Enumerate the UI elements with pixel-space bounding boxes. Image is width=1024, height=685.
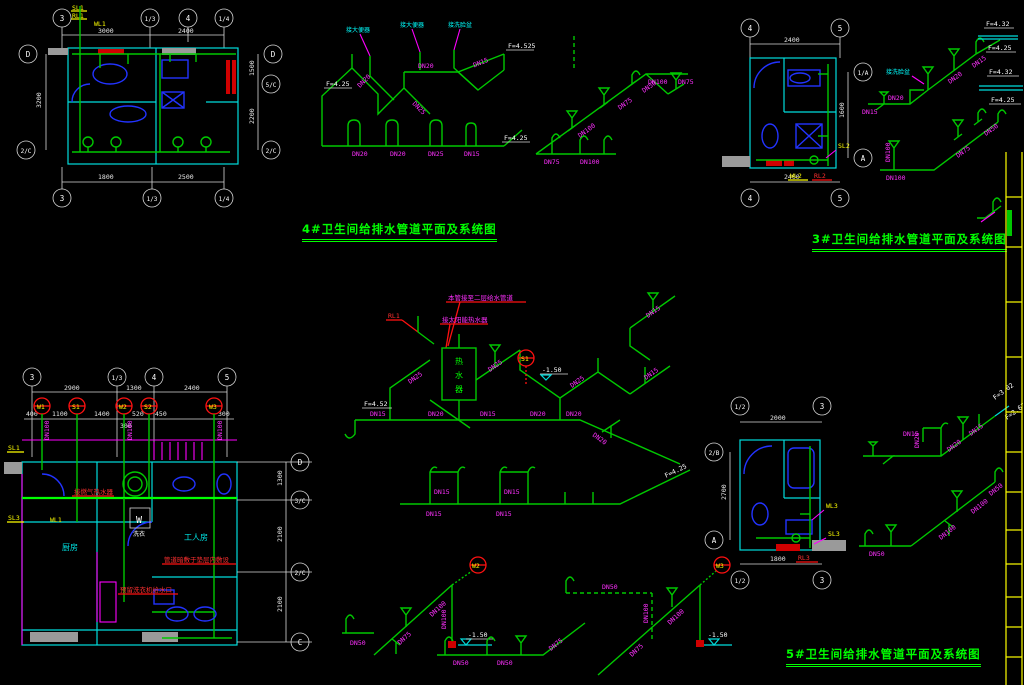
dn-label: DN100 xyxy=(580,158,600,166)
hot-water-annotations: RL1 本管接至二层给水管道 接太阳能热水器 xyxy=(386,293,526,348)
riser-label: SL3 xyxy=(8,514,20,522)
grid-bubble: D xyxy=(298,458,303,467)
dn-label: DN25 xyxy=(407,370,424,386)
fixture-callouts: 接大便器 接大便器 接洗脸盆 xyxy=(346,21,472,56)
plan-5-floor-plan: 1/2 3 1/2 3 2/B A 2000 1800 2700 xyxy=(700,388,856,590)
dn-label: DN50 xyxy=(497,659,513,667)
drawing-title-4: 4#卫生间给排水管道平面及系统图 xyxy=(302,221,497,242)
heater-box: 热 水 器 xyxy=(442,348,476,400)
grid-bubble: 4 xyxy=(748,194,753,203)
washing-machine-w: W xyxy=(136,515,143,526)
room-label-worker: 工人房 xyxy=(184,532,208,542)
dn-label: DN15 xyxy=(496,510,512,518)
riser-mark-text: S1 xyxy=(521,355,529,363)
dn-label: DN15 xyxy=(426,510,442,518)
grid-bubble: 2/B xyxy=(709,450,720,457)
riser-label: RL1 xyxy=(388,312,400,320)
annotation: 接燃气热水器 xyxy=(74,487,114,496)
riser-label: SL1 xyxy=(8,444,20,452)
iso-5-supply-diagram: RL1 本管接至二层给水管道 接太阳能热水器 热 水 器 S1 xyxy=(330,288,710,468)
callout-text: 接洗脸盆 xyxy=(448,21,472,29)
riser-mark-text: S2 xyxy=(144,403,152,411)
dim-text: 520 xyxy=(132,410,144,418)
elev-label: F=4.25 xyxy=(991,96,1015,104)
dim-text: 2400 xyxy=(178,27,194,35)
grid-bubble: 5 xyxy=(225,373,230,382)
dn-label: DN20 xyxy=(428,410,444,418)
heater-text: 热 xyxy=(455,356,463,366)
dim-text: 2200 xyxy=(248,108,256,124)
wall-red xyxy=(226,60,230,94)
grid-bubble: 1/3 xyxy=(112,375,123,382)
pipe-base xyxy=(696,640,704,647)
dn-label: DN100 xyxy=(884,142,892,162)
iso-supply-row-diagram: DN15 DN15 DN15 DN15 F=4.25 xyxy=(390,452,720,524)
dn-label: DN100 xyxy=(126,420,134,440)
grid-bubble: 1/4 xyxy=(219,16,230,23)
annotation: 预留洗衣机给水口 xyxy=(120,585,172,594)
dn-label: DN75 xyxy=(954,144,971,160)
dn-label: DN100 xyxy=(886,174,906,182)
plan5L-grid-right: D 3/C 2/C C 1300 2100 2100 xyxy=(237,453,312,651)
dim-text: 2700 xyxy=(720,484,728,500)
grid-bubble: 4 xyxy=(186,14,191,23)
w3-labels: DN50 DN100 DN75 DN100 xyxy=(602,583,686,658)
dn-label: DN50 xyxy=(350,639,366,647)
riser-mark-s1: S1 xyxy=(69,398,85,414)
plan4-fixtures xyxy=(72,60,188,122)
plan-5-large-floor-plan: 3 1/3 4 5 2900 1300 2400 400 1100 1400 5… xyxy=(2,362,324,684)
cell-mark xyxy=(1007,210,1012,236)
wall-hatch xyxy=(142,632,178,642)
dn-label: DN20 xyxy=(390,150,406,158)
dim-text: 1300 xyxy=(126,384,142,392)
dn-label: DN50 xyxy=(869,550,885,558)
wall-hatch xyxy=(4,462,22,474)
grid-bubble: 3 xyxy=(820,576,825,585)
plan3-pipes xyxy=(756,64,828,166)
wall-red xyxy=(766,160,782,166)
riser-mark-text: W1 xyxy=(37,403,45,411)
plan4-grid-bubbles: 3 1/3 4 1/4 3 1/3 1/4 D 2/C D 5/C 2/C xyxy=(17,9,282,207)
dim-text: 2100 xyxy=(276,526,284,542)
grid-bubble: 5 xyxy=(838,24,843,33)
grid-bubble: 3/C xyxy=(295,498,306,505)
plan4-walls xyxy=(48,48,238,164)
supply-dn-labels: DN15 DN25 DN25 DN20 DN15 DN20 DN20 DN20 … xyxy=(370,304,662,447)
dn-label: DN20 xyxy=(530,410,546,418)
annotation: 接太阳能热水器 xyxy=(442,315,488,324)
dn-label: DN75 xyxy=(678,78,694,86)
dn-label: DN100 xyxy=(937,523,957,541)
dn-label: DN15 xyxy=(472,56,490,69)
grid-bubble: D xyxy=(26,50,31,59)
riser-mark-w2: W2 xyxy=(116,398,132,414)
wall-hatch xyxy=(48,48,68,55)
elev-label: -1.50 xyxy=(542,366,562,374)
grid-bubble: 3 xyxy=(60,194,65,203)
riser-mark-w3: W3 xyxy=(206,398,222,414)
grid-bubble: 5 xyxy=(838,194,843,203)
dim-text: 1800 xyxy=(98,173,114,181)
dn-label: DN20 xyxy=(913,432,921,448)
elev-label: F=4.52 xyxy=(364,400,388,408)
dn-label: DN75 xyxy=(616,96,633,112)
grid-bubble: 5/C xyxy=(266,82,277,89)
dn-label: DN20 xyxy=(352,150,368,158)
dn-label: DN75 xyxy=(628,642,645,658)
riser-label: SL2 xyxy=(838,142,850,150)
heater-text: 器 xyxy=(455,385,463,394)
dn-label: DN25 xyxy=(428,150,444,158)
wall-red xyxy=(784,160,794,166)
w3-pipes xyxy=(566,571,716,675)
row-pipes xyxy=(400,467,690,504)
dn-label: DN15 xyxy=(967,422,984,438)
plan3-grid-bubbles: 4 5 4 5 1/A A xyxy=(741,19,872,207)
riser-label: RL3 xyxy=(798,554,810,562)
dim-text: 2900 xyxy=(64,384,80,392)
dn-label: DN100 xyxy=(648,78,668,86)
iso-4-supply-diagram: 接大便器 接大便器 接洗脸盆 DN20 DN25 DN20 DN15 DN20 … xyxy=(308,18,536,166)
dim-text: 1300 xyxy=(276,470,284,486)
drawing-title-5: 5#卫生间给排水管道平面及系统图 xyxy=(786,646,981,667)
dn-label: DN20 xyxy=(418,62,434,70)
elev-label: F=4.32 xyxy=(989,68,1013,76)
annotation: 本管接至二层给水管道 xyxy=(448,293,514,302)
grid-bubble: 3 xyxy=(30,373,35,382)
dn-label: DN15 xyxy=(464,150,480,158)
dim-text: 450 xyxy=(155,410,167,418)
dim-text: 1800 xyxy=(770,555,786,563)
wall-hatch xyxy=(812,540,846,551)
grid-bubble: 3 xyxy=(60,14,65,23)
plan-3-floor-plan: 4 5 4 5 1/A A 2400 2400 1600 xyxy=(722,8,878,210)
dim-text: 2400 xyxy=(784,36,800,44)
grid-bubble: 3 xyxy=(820,402,825,411)
dim-text: 3200 xyxy=(35,92,43,108)
dn-label: DN15 xyxy=(862,108,878,116)
dn-label: DN20 xyxy=(591,431,608,447)
elev-label: F=4.25 xyxy=(504,134,528,142)
grid-bubble: 1/2 xyxy=(735,404,746,411)
dim-text: 2000 xyxy=(770,414,786,422)
riser-label: WL1 xyxy=(50,516,62,524)
iso-4-drain-diagram: DN100 DN75 DN50 DN100 DN75 DN100 DN75 xyxy=(528,36,728,174)
riser-label: SL3 xyxy=(828,530,840,538)
plan5-dimensions: 2000 1800 2700 xyxy=(720,414,822,564)
riser-label: WL2 xyxy=(790,172,802,180)
dn-label: DN50 xyxy=(453,659,469,667)
heater-text: 水 xyxy=(455,370,463,380)
cad-canvas: SL1 RL1 WL1 3 1/3 4 1/4 3 1/3 1/4 D 2/C … xyxy=(0,0,1024,685)
plan5L-top-walls: DN100 DN100 DN100 xyxy=(22,420,237,462)
plan5L-walls xyxy=(4,462,237,645)
riser-mark-w1: W1 xyxy=(34,398,50,414)
riser-mark-text: S1 xyxy=(72,403,80,411)
riser-mark-text: W3 xyxy=(209,403,217,411)
dn-label: DN25 xyxy=(411,100,428,117)
stove xyxy=(100,582,116,622)
room-label-kitchen: 厨房 xyxy=(62,542,78,552)
dn-label: DN15 xyxy=(370,410,386,418)
grid-bubble: C xyxy=(298,638,303,647)
grid-bubble: D xyxy=(271,50,276,59)
plan5-riser-labels: WL3 SL3 RL3 xyxy=(796,502,840,562)
dim-text: 1500 xyxy=(248,60,256,76)
title-block-border xyxy=(1003,152,1024,685)
outfall-pipe-glyph xyxy=(977,198,1001,222)
room-label-laundry: 洗衣 xyxy=(133,530,145,538)
riser-label: RL2 xyxy=(814,172,826,180)
dn-label: DN20 xyxy=(888,94,904,102)
dn-label: DN100 xyxy=(43,420,51,440)
riser-mark-text: W2 xyxy=(119,403,127,411)
grid-bubble: 4 xyxy=(152,373,157,382)
grid-bubble: 1/3 xyxy=(147,196,158,203)
dn-label: DN50 xyxy=(602,583,618,591)
plan4-riser-labels: SL1 RL1 WL1 xyxy=(71,4,106,28)
grid-bubble: 2/C xyxy=(21,148,32,155)
drain-pipes xyxy=(536,36,688,154)
plan-4-floor-plan: SL1 RL1 WL1 3 1/3 4 1/4 3 1/3 1/4 D 2/C … xyxy=(10,2,310,214)
dim-text: 2100 xyxy=(276,596,284,612)
callout-text: 接大便器 xyxy=(400,21,424,29)
wall-red xyxy=(776,544,800,551)
wall-hatch xyxy=(722,156,750,167)
grid-bubble: A xyxy=(712,536,717,545)
dn-label: DN15 xyxy=(434,488,450,496)
grid-bubble: 2/C xyxy=(295,570,306,577)
grid-bubble: 1/4 xyxy=(219,196,230,203)
wall-red xyxy=(98,49,124,54)
elev-label: F=4.25 xyxy=(988,44,1012,52)
dim-text: 3000 xyxy=(98,27,114,35)
wall-red xyxy=(232,60,236,94)
dim-text: 1600 xyxy=(838,102,846,118)
title-block-cells xyxy=(1006,197,1022,657)
dn-label: DN15 xyxy=(504,488,520,496)
grid-bubble: 4 xyxy=(748,24,753,33)
grid-bubble: 2/C xyxy=(266,148,277,155)
plan5L-pipes xyxy=(22,414,237,638)
dim-text: 1100 xyxy=(52,410,68,418)
iso-5-right-diagrams: DN15 DN20 DN15 DN20 F=3.02 F=2.62 DN50 D… xyxy=(845,378,1023,576)
supply-marks: S1 -1.50 F=4.52 xyxy=(362,350,568,408)
elev-label: F=4.25 xyxy=(326,80,350,88)
dn-label: DN20 xyxy=(566,410,582,418)
riser-label: WL3 xyxy=(826,502,838,510)
callout-text: 接大便器 xyxy=(346,26,370,34)
grid-bubble: 1/2 xyxy=(735,578,746,585)
dim-text: 2500 xyxy=(178,173,194,181)
dim-text: 1400 xyxy=(94,410,110,418)
iso5r-supply-pipes xyxy=(863,406,1009,464)
annotation: 管道暗敷于垫层内敷设 xyxy=(164,555,230,564)
plan3-fixtures xyxy=(754,62,822,148)
dim-text: 2400 xyxy=(184,384,200,392)
dn-label: DN25 xyxy=(569,374,586,390)
dn-label: DN25 xyxy=(487,358,504,374)
dn-label: DN100 xyxy=(642,603,650,623)
plan5-fixtures xyxy=(744,446,814,534)
wall-hatch xyxy=(30,632,78,642)
stair-hatch xyxy=(154,442,202,460)
dn-label: DN100 xyxy=(216,420,224,440)
dn-label: DN15 xyxy=(480,410,496,418)
dn-label: DN100 xyxy=(666,607,686,626)
dn-label: DN20 xyxy=(946,70,963,86)
elev-label: -1.50 xyxy=(708,631,728,639)
riser-mark-s2: S2 xyxy=(141,398,157,414)
elev-label: F=4.32 xyxy=(986,20,1010,28)
dn-label: DN75 xyxy=(544,158,560,166)
dn-label: DN20 xyxy=(945,438,962,454)
plan5-pipes xyxy=(756,446,810,548)
riser-mark-text: W2 xyxy=(472,562,480,570)
grid-bubble: 1/3 xyxy=(145,16,156,23)
callout-text: 接洗脸盆 xyxy=(886,68,910,76)
